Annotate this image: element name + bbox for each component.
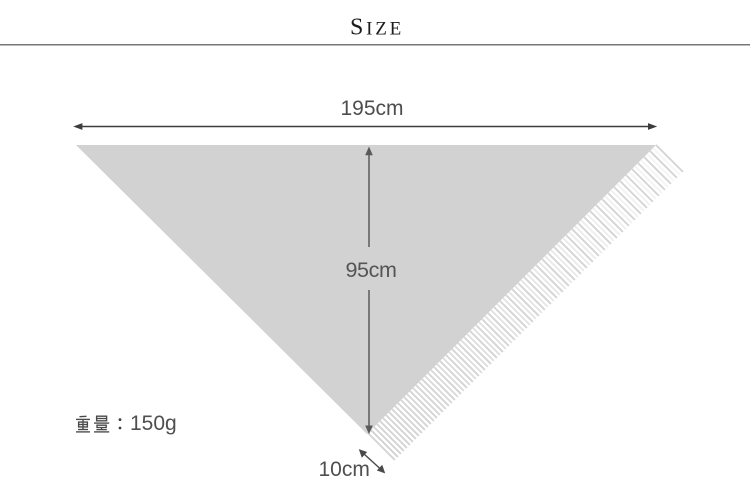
svg-text:95cm: 95cm bbox=[346, 258, 397, 282]
svg-text:10cm: 10cm bbox=[319, 458, 370, 481]
svg-text:SIZE: SIZE bbox=[350, 15, 404, 41]
svg-text:150g: 150g bbox=[130, 412, 177, 435]
svg-text:195cm: 195cm bbox=[340, 97, 403, 120]
